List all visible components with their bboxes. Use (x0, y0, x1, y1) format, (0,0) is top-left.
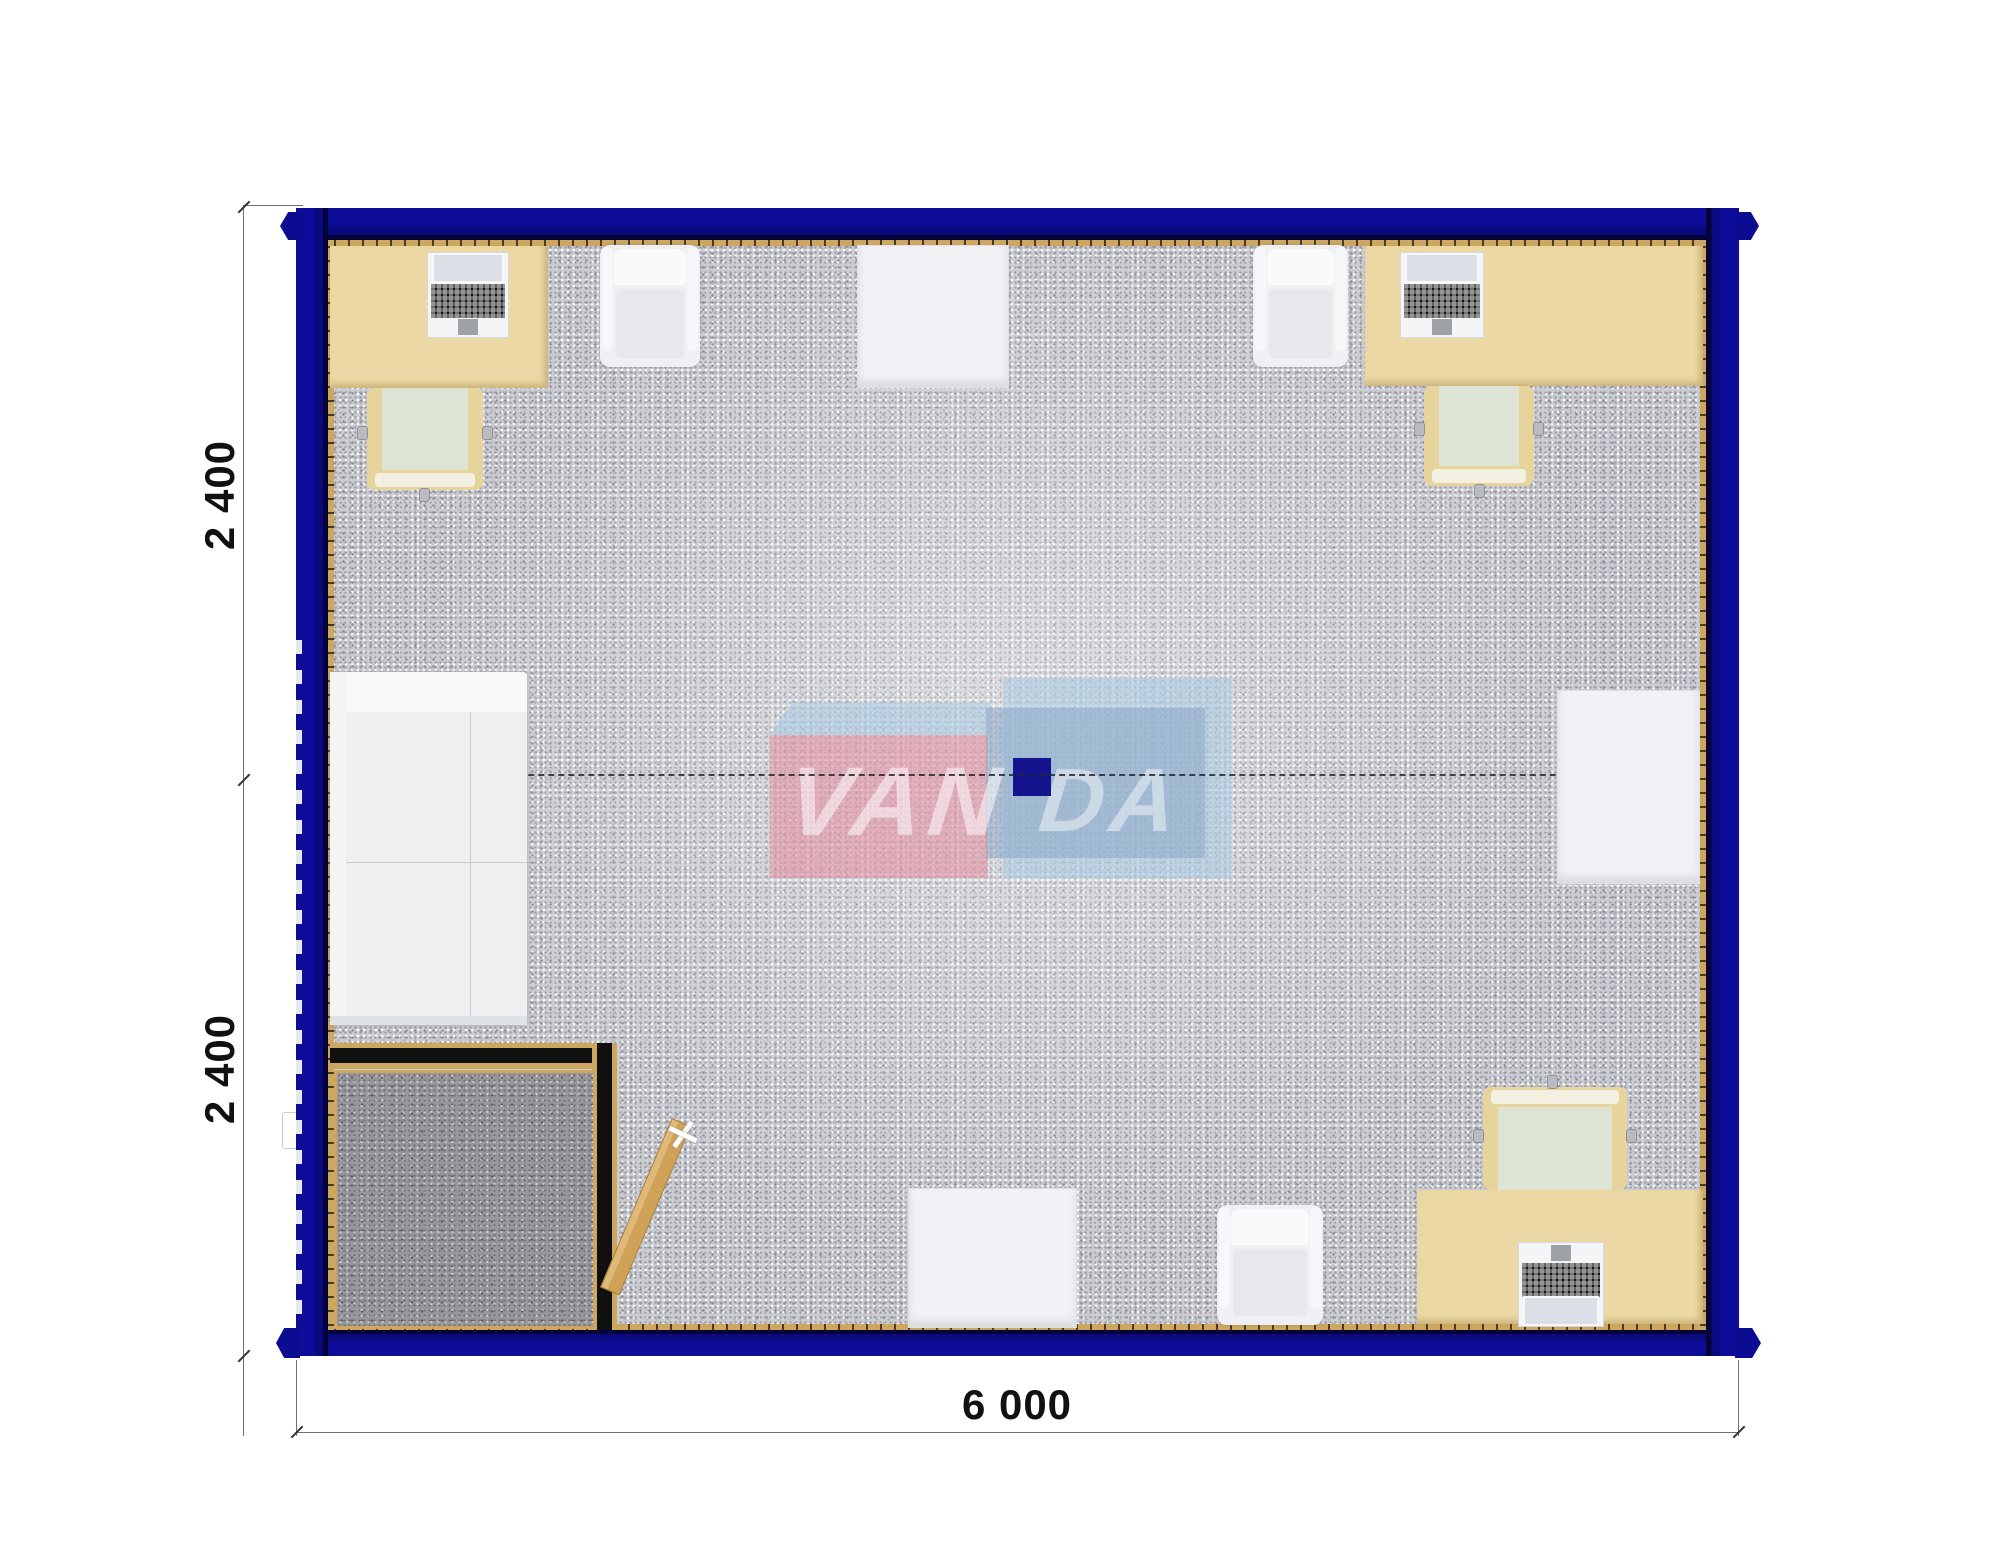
wall-left-dashed-edge (296, 640, 302, 1330)
extension-line-left (296, 1360, 297, 1436)
chair-backrest (1432, 469, 1526, 483)
chair-wheel (1626, 1129, 1637, 1143)
laptop-keyboard (1404, 284, 1480, 318)
table-bottom-center (908, 1188, 1077, 1328)
cabinet-right-wall (1557, 690, 1700, 884)
armchair-backrest (1267, 249, 1334, 285)
chair-wheel (1473, 1129, 1484, 1143)
chair-backrest (375, 473, 475, 487)
sofa-front-edge (330, 1016, 527, 1025)
laptop-top-left (427, 252, 509, 338)
chair-wheel (482, 426, 493, 440)
armrest (1255, 247, 1266, 351)
wall-top (296, 208, 1739, 240)
laptop-touchpad (458, 319, 478, 335)
armrest (1335, 247, 1346, 351)
corner-tab-top-left (280, 212, 304, 240)
armchair-top-left-center (600, 245, 700, 367)
laptop-keyboard (1522, 1263, 1600, 1297)
office-chair-top-left (367, 388, 483, 490)
corner-tab-bottom-right (1735, 1328, 1761, 1358)
armchair-bottom-center (1217, 1205, 1323, 1325)
laptop-screen (432, 253, 504, 283)
dimension-tick (238, 1350, 251, 1363)
corner-tab-bottom-left (276, 1328, 300, 1358)
logo-text-da: DA (1035, 756, 1186, 846)
laptop-top-right (1400, 252, 1484, 338)
dimension-tick (238, 201, 251, 214)
wall-right (1706, 208, 1739, 1356)
office-chair-bottom-right (1483, 1087, 1627, 1190)
armchair-backrest (1231, 1209, 1309, 1245)
sofa (330, 672, 527, 1025)
wall-bottom (296, 1330, 1739, 1356)
chair-wheel (1533, 422, 1544, 436)
chair-seat (382, 388, 468, 470)
chair-wheel (1414, 422, 1425, 436)
sofa-armrest (330, 672, 346, 1025)
laptop-screen (1523, 1296, 1599, 1326)
floor-plan-canvas: VAN DA (0, 0, 2000, 1561)
entry-wall-top (330, 1043, 617, 1069)
sofa-backrest (330, 672, 527, 712)
logo-navy-square (1013, 758, 1051, 796)
sofa-cushion-seam (470, 712, 471, 1025)
dimension-tick (238, 774, 251, 787)
armrest (1310, 1207, 1321, 1309)
armchair-backrest (614, 249, 686, 285)
dimension-line-horizontal (296, 1432, 1739, 1433)
armchair-top-right-center (1253, 245, 1348, 367)
armrest (1219, 1207, 1230, 1309)
office-chair-top-right (1424, 386, 1534, 486)
laptop-bottom-right (1518, 1242, 1604, 1327)
module-seam-dashed-line (328, 774, 1706, 776)
laptop-touchpad (1432, 319, 1452, 335)
laptop-keyboard (431, 284, 505, 318)
dimension-line-vertical (243, 205, 244, 1436)
chair-wheel (1474, 484, 1485, 498)
laptop-touchpad (1551, 1245, 1571, 1261)
chair-seat (1439, 386, 1519, 466)
dimension-label-left-bottom: 2 400 (196, 979, 244, 1159)
chair-wheel (419, 488, 430, 502)
logo-text-van: VAN (783, 752, 1011, 850)
laptop-screen (1405, 253, 1479, 283)
extension-line-right (1738, 1360, 1739, 1436)
dimension-label-bottom: 6 000 (917, 1381, 1117, 1429)
dimension-label-left-top: 2 400 (196, 405, 244, 585)
table-top-center (857, 245, 1009, 388)
extension-line-top (243, 205, 303, 206)
armchair-seat (1233, 1249, 1307, 1316)
armchair-seat (616, 289, 684, 358)
entry-floor-carpet (334, 1070, 596, 1329)
chair-wheel (1547, 1075, 1558, 1089)
corner-tab-top-right (1735, 212, 1759, 240)
armrest (687, 247, 698, 351)
logo-extrusion-top (770, 703, 990, 735)
chair-backrest (1491, 1090, 1619, 1104)
chair-wheel (357, 426, 368, 440)
armrest (602, 247, 613, 351)
armchair-seat (1269, 289, 1332, 358)
sofa-cushion-seam (346, 862, 527, 863)
chair-seat (1498, 1107, 1612, 1190)
